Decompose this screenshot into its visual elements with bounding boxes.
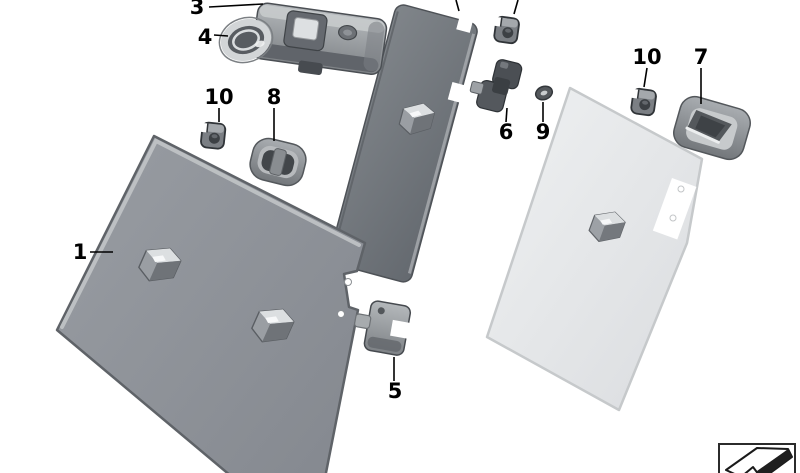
rear-panel-hole-bottom [670,215,676,221]
callout-10-right-label[interactable]: 10 [632,45,661,69]
callout-10-left-label[interactable]: 10 [204,85,233,109]
front-panel-hole-bottom [338,311,345,318]
callout-3-label[interactable]: 3 [190,0,205,19]
callout-1-label[interactable]: 1 [73,240,88,264]
clip-part10-right [628,88,657,116]
front-backrest-panel-part1 [57,136,365,473]
latch-bracket-part6 [467,54,523,115]
callout-6-label[interactable]: 6 [499,120,514,144]
pocket-handle-cup-part8 [247,135,310,189]
callout-4-label[interactable]: 4 [198,25,213,49]
callout-7-label[interactable]: 7 [694,45,709,69]
grommet-part9 [534,84,554,102]
middle-panel-leader-line-cutoff [456,0,459,11]
clip-unlabeled-top [491,16,520,44]
armrest-hatch-module-part3 [250,2,388,83]
callout-10-right-leader-line [644,68,647,87]
callout-4-leader-line [214,35,228,36]
rear-panel-hole-top [678,186,684,192]
armrest-latch [292,17,319,40]
page-forward-arrow-icon[interactable] [719,444,795,473]
callout-8-label[interactable]: 8 [267,85,282,109]
callout-9-label[interactable]: 9 [536,120,551,144]
clip-part10-left [197,122,225,150]
diagram-canvas: 3 4 10 8 1 5 6 9 10 7 [0,0,800,473]
hinge-bracket-part5 [351,298,416,357]
rear-backrest-panel [487,88,702,410]
top-clip-leader-line-cutoff [514,0,518,14]
callout-3-leader-line [209,4,263,7]
parts-diagram-page: 3 4 10 8 1 5 6 9 10 7 [0,0,800,473]
callout-5-label[interactable]: 5 [388,379,403,403]
front-panel-hole-top [345,279,352,286]
